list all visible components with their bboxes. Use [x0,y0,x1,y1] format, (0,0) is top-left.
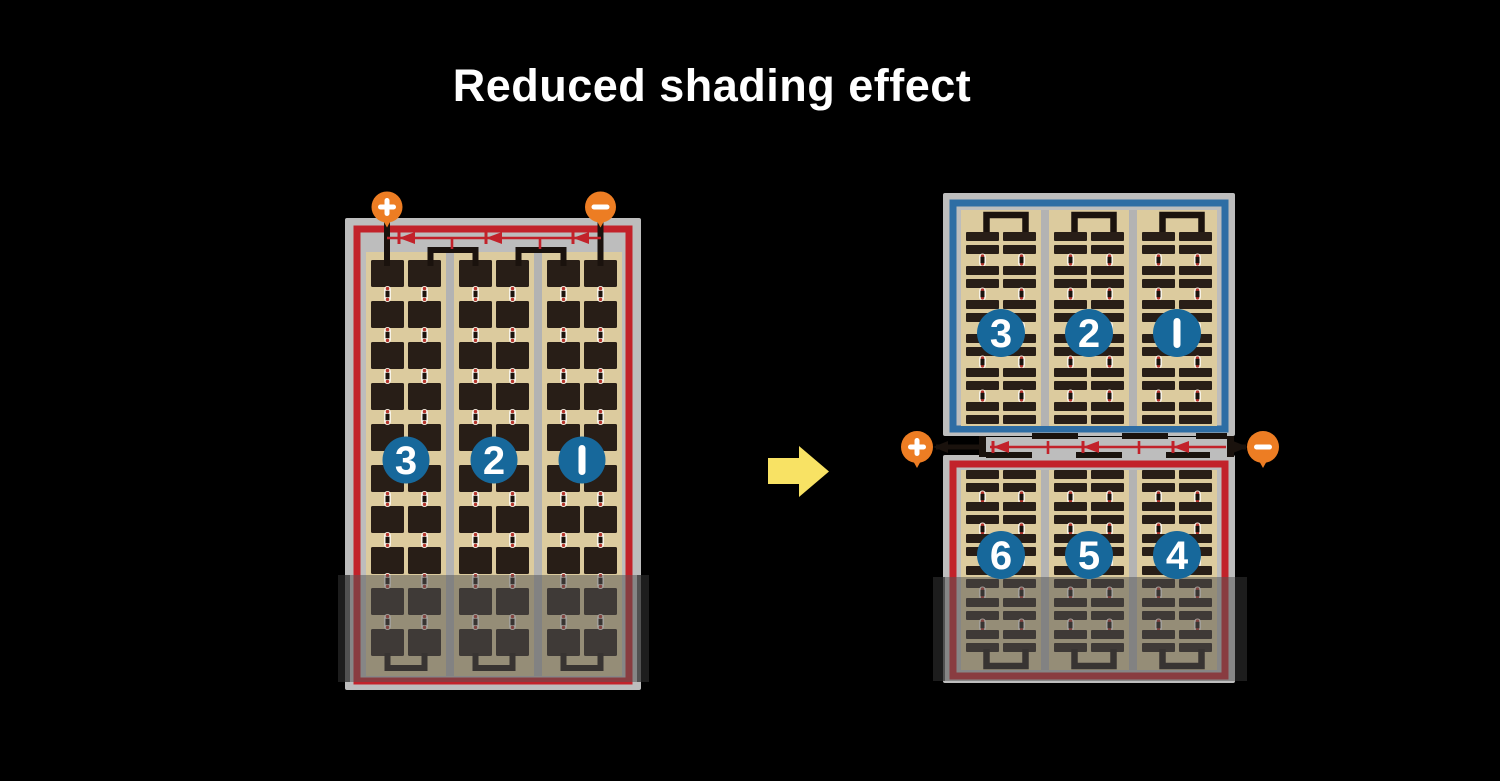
bottom-half: 654 [933,455,1247,683]
shade-overlay [933,577,1247,681]
minus-terminal [1247,431,1279,468]
string-badge-1 [1153,309,1201,357]
right-module: 32654 [901,193,1279,683]
svg-text:3: 3 [395,439,417,483]
svg-text:5: 5 [1078,534,1100,578]
svg-text:2: 2 [483,439,505,483]
transform-arrow-icon [768,446,829,497]
plus-terminal [901,431,933,468]
top-half: 32 [943,193,1235,436]
string-badge-6: 6 [977,531,1025,579]
string-badge-3: 3 [977,309,1025,357]
left-module: 32 [338,192,649,691]
shade-overlay [338,575,649,682]
svg-text:3: 3 [990,312,1012,356]
string-badge-3: 3 [383,437,430,484]
junction-strip [933,433,1248,458]
string-badge-2: 2 [471,437,518,484]
shading-comparison-diagram: 3232654 [0,0,1500,781]
string-badge-5: 5 [1065,531,1113,579]
string-badge-2: 2 [1065,309,1113,357]
string-badge-4: 4 [1153,531,1201,579]
svg-text:6: 6 [990,534,1012,578]
svg-text:2: 2 [1078,312,1100,356]
string-badge-1 [559,437,606,484]
svg-text:4: 4 [1166,534,1189,578]
diagram-canvas: Reduced shading effect 3232654 [0,0,1500,781]
